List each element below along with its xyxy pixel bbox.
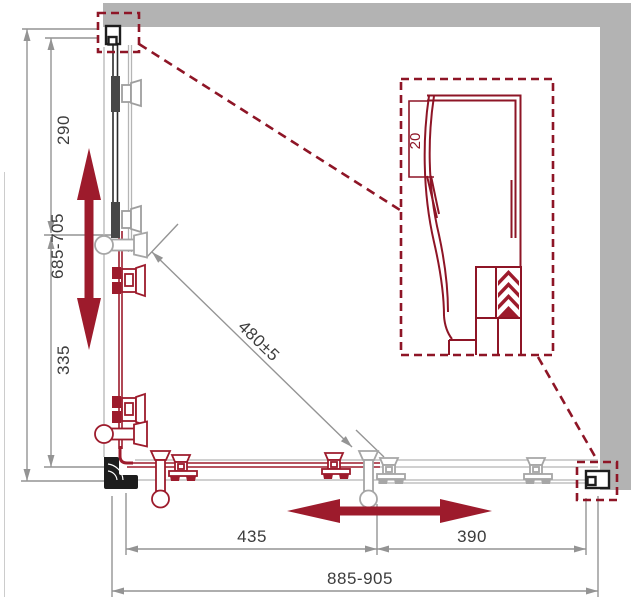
roller-carriage-mid [111,202,141,238]
wall-profile-bottom-right [586,471,609,488]
wall-profile-top-left [106,26,120,45]
dim-label-door-left: 435 [237,527,267,546]
profile-cross-section: 20 [407,96,521,356]
slide-arrow-horizontal [287,499,492,523]
dim-label-profile-depth: 20 [407,133,424,150]
dim-label-door-right: 390 [457,527,487,546]
dim-label-overall-height: 685-705 [48,213,67,279]
door-handle-left-upper [95,233,147,258]
roller-bottom-red-1 [169,455,197,481]
callout-leader-lines [139,44,597,460]
dim-label-diagonal: 480±5 [234,317,283,365]
dim-label-overall-width: 885-905 [327,569,393,588]
wall-top [103,3,631,27]
shower-enclosure-dimension-diagram: 685-705 290 335 480±5 435 390 885-905 [0,0,631,600]
door-handle-bottom-gray [359,451,378,508]
door-handle-bottom-red [151,451,170,508]
wall-right [600,3,631,490]
roller-red-upper [112,265,145,296]
diagram-canvas: 685-705 290 335 480±5 435 390 885-905 [0,0,631,600]
roller-red-lower [112,394,145,425]
dim-label-lower-section: 335 [54,345,73,375]
dim-label-upper-section: 290 [54,115,73,145]
roller-bottom-red-2 [322,453,350,479]
roller-carriage-top [111,76,141,112]
door-handle-left-lower [95,422,147,447]
